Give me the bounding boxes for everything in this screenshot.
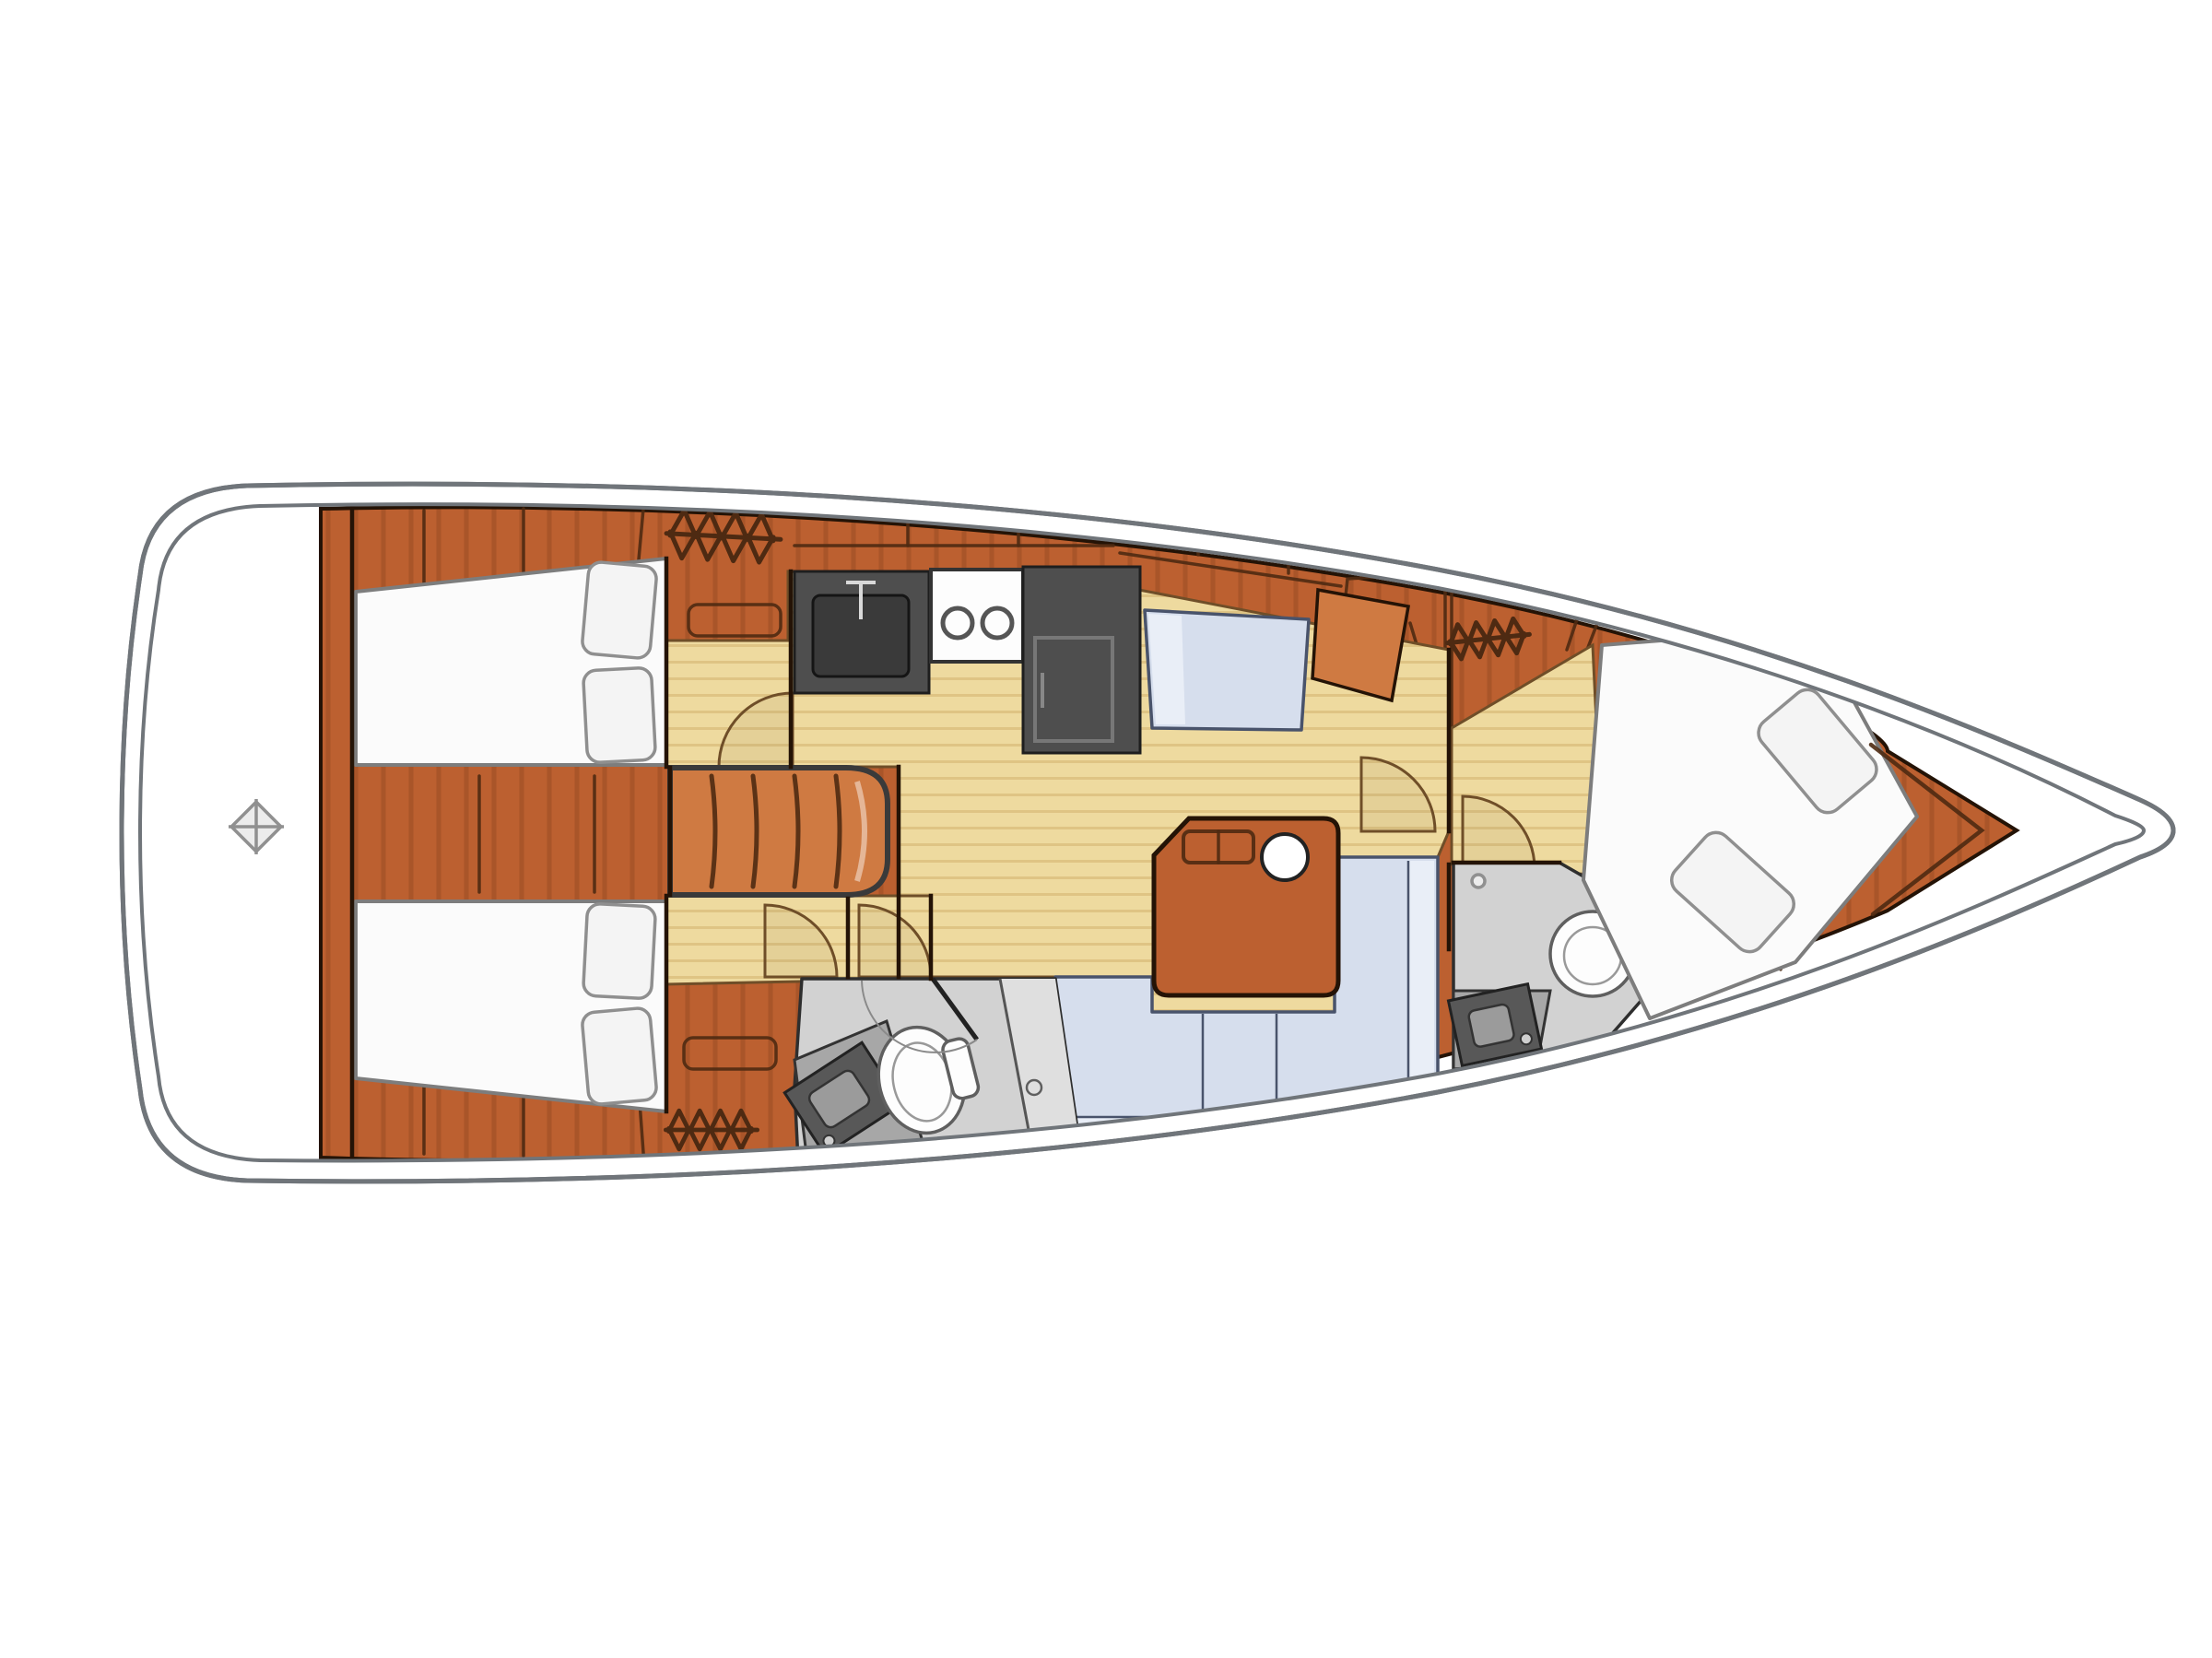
interior-group bbox=[321, 488, 2017, 1198]
aft-cabin-starboard bbox=[356, 901, 666, 1111]
companionway-steps bbox=[670, 768, 888, 895]
aft-port-pillow-1 bbox=[582, 561, 657, 659]
yacht-layout-page: Sailing yacht interior layout plan — top… bbox=[0, 0, 2212, 1658]
saloon-table bbox=[1154, 818, 1338, 995]
steps-block bbox=[670, 768, 888, 895]
aft-starboard-pillow-2 bbox=[582, 1007, 657, 1105]
aft-port-pillow-2 bbox=[582, 667, 655, 763]
cup-holder bbox=[1262, 834, 1308, 880]
chart-table bbox=[1312, 590, 1408, 700]
forward-head-door-hinge bbox=[1472, 875, 1485, 888]
galley-refrigerator bbox=[1023, 567, 1140, 753]
aft-starboard-pillow-1 bbox=[582, 903, 655, 999]
aft-cabin-port bbox=[356, 559, 666, 765]
yacht-layout-plan: Sailing yacht interior layout plan — top… bbox=[0, 0, 2212, 1658]
